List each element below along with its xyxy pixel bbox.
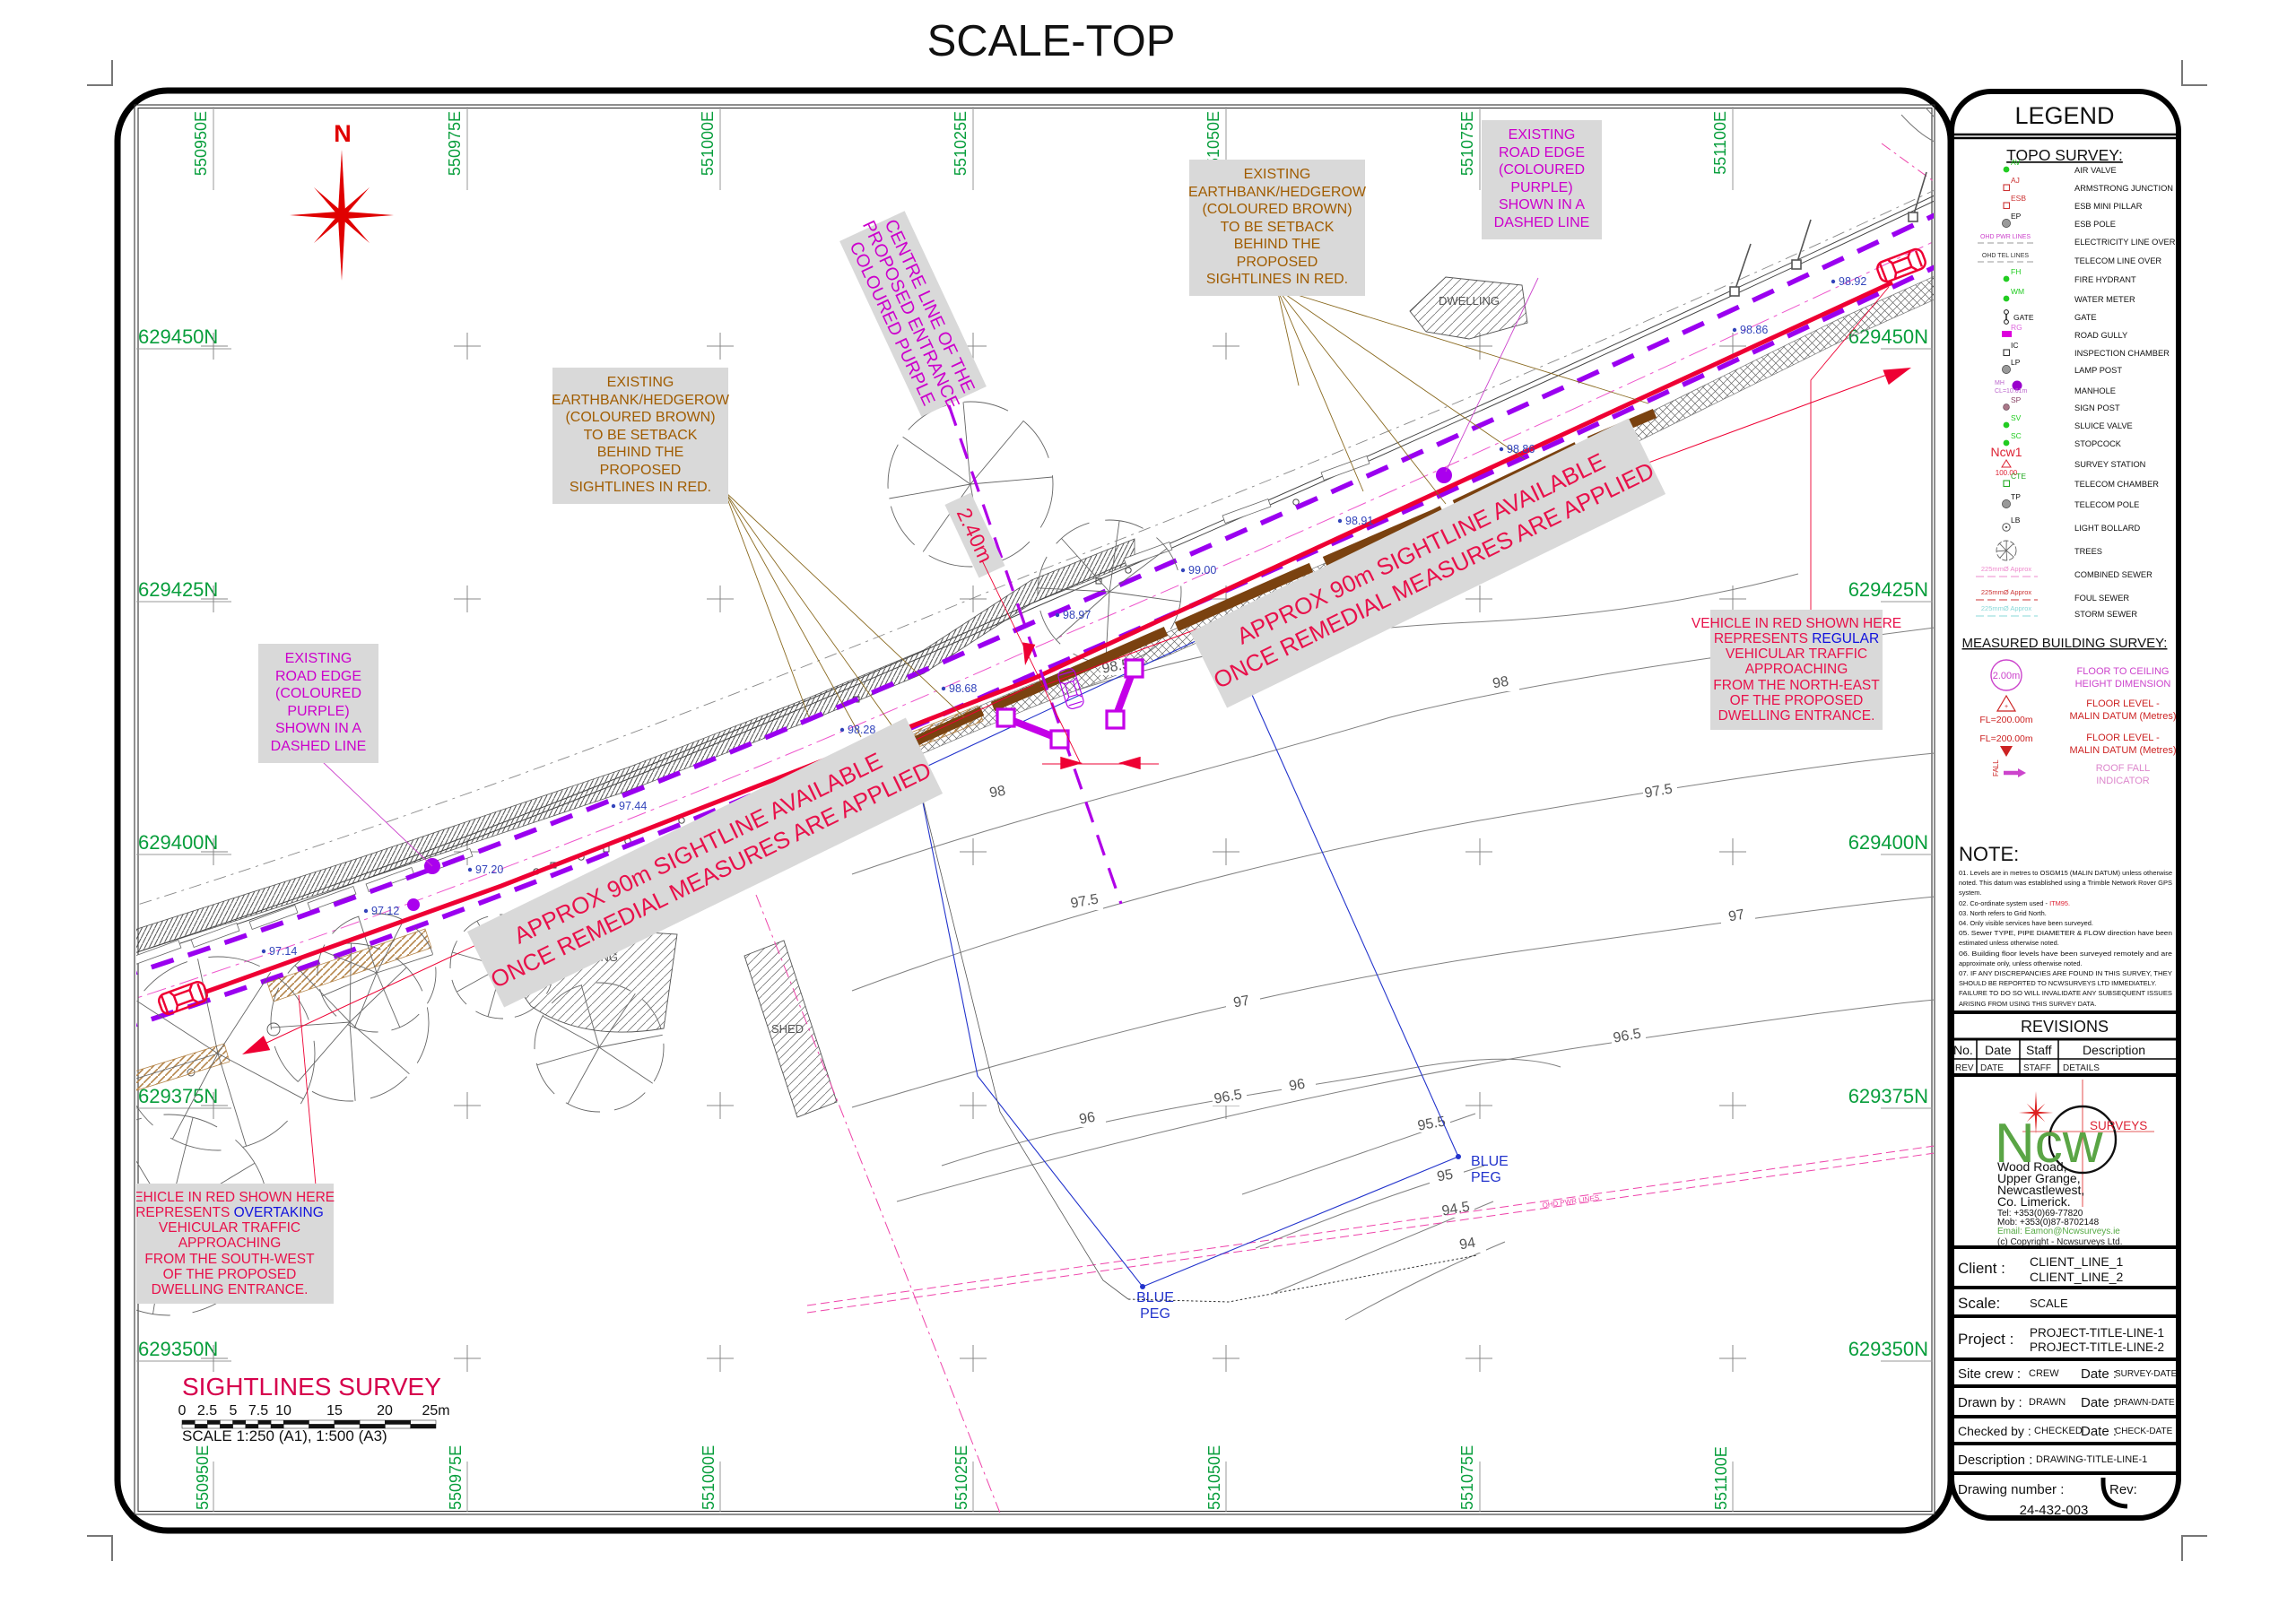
svg-text:LIGHT BOLLARD: LIGHT BOLLARD (2074, 524, 2140, 533)
svg-text:SIGHTLINES SURVEY: SIGHTLINES SURVEY (182, 1373, 441, 1401)
svg-text:PROJECT-TITLE-LINE-2: PROJECT-TITLE-LINE-2 (2030, 1340, 2164, 1354)
svg-text:FLOOR LEVEL -: FLOOR LEVEL - (2086, 698, 2160, 709)
svg-text:01. Levels are in metres to O: 01. Levels are in metres to OSGM15 (MALI… (1959, 869, 2172, 877)
svg-text:system.: system. (1959, 889, 1981, 897)
svg-text:SIGHTLINES IN RED.: SIGHTLINES IN RED. (1206, 272, 1348, 287)
svg-text:SCALE: SCALE (2030, 1297, 2068, 1310)
svg-text:551025E: 551025E (952, 1445, 970, 1510)
svg-text:GATE: GATE (2013, 313, 2034, 322)
svg-text:DWELLING: DWELLING (1439, 294, 1500, 308)
svg-text:97.20: 97.20 (475, 863, 503, 876)
svg-text:Site crew :: Site crew : (1958, 1366, 2021, 1382)
svg-text:PROJECT-TITLE-LINE-1: PROJECT-TITLE-LINE-1 (2030, 1326, 2164, 1340)
svg-text:WM: WM (2011, 287, 2024, 296)
svg-text:550950E: 550950E (194, 1445, 212, 1510)
svg-text:98: 98 (1492, 674, 1510, 692)
svg-text:Scale:: Scale: (1958, 1295, 2000, 1312)
svg-text:REV: REV (1955, 1063, 1974, 1073)
svg-text:2.00m: 2.00m (1993, 671, 2021, 681)
svg-text:FALL: FALL (1992, 759, 2000, 776)
svg-text:15: 15 (326, 1403, 343, 1418)
svg-text:Drawing number :: Drawing number : (1958, 1482, 2064, 1497)
svg-text:(COLOURED: (COLOURED (1499, 162, 1585, 178)
svg-text:ARISING FROM USING THIS SURVEY: ARISING FROM USING THIS SURVEY DATA. (1959, 1000, 2096, 1008)
svg-text:ELECTRICITY LINE OVER: ELECTRICITY LINE OVER (2074, 238, 2176, 247)
svg-text:VEHICLE IN RED SHOWN HERE: VEHICLE IN RED SHOWN HERE (1692, 616, 1901, 631)
svg-text:225mmØ Approx: 225mmØ Approx (1981, 604, 2032, 612)
svg-text:551100E: 551100E (1712, 1446, 1730, 1510)
svg-text:VEHICLE IN RED SHOWN HERE: VEHICLE IN RED SHOWN HERE (125, 1190, 335, 1205)
svg-text:225mmØ Approx: 225mmØ Approx (1981, 565, 2032, 573)
svg-text:TELECOM POLE: TELECOM POLE (2074, 500, 2139, 509)
svg-text:TREES: TREES (2074, 547, 2102, 556)
svg-text:629450N: 629450N (138, 325, 218, 348)
svg-text:APPROACHING: APPROACHING (178, 1236, 282, 1251)
svg-text:PURPLE): PURPLE) (287, 704, 349, 719)
svg-text:N: N (334, 120, 352, 147)
svg-text:CHECKED: CHECKED (2034, 1426, 2083, 1436)
svg-text:98.91: 98.91 (1345, 515, 1373, 527)
svg-text:CL=10.61m: CL=10.61m (1995, 388, 2028, 395)
svg-text:FAILURE TO DO SO WILL INVALIDA: FAILURE TO DO SO WILL INVALIDATE ANY SUB… (1959, 989, 2172, 997)
svg-text:BEHIND THE: BEHIND THE (597, 445, 684, 460)
svg-text:DRAWING-TITLE-LINE-1: DRAWING-TITLE-LINE-1 (2036, 1454, 2147, 1465)
svg-text:551075E: 551075E (1458, 1445, 1476, 1510)
svg-text:7.5: 7.5 (248, 1403, 268, 1418)
svg-text:95: 95 (1436, 1167, 1455, 1185)
svg-text:629425N: 629425N (138, 578, 218, 601)
svg-text:SURVEY-DATE: SURVEY-DATE (2115, 1369, 2178, 1379)
svg-text:629350N: 629350N (138, 1338, 218, 1360)
svg-text:MEASURED BUILDING SURVEY:: MEASURED BUILDING SURVEY: (1962, 636, 2168, 651)
svg-text:PROPOSED: PROPOSED (1237, 255, 1318, 270)
svg-text:SLUICE VALVE: SLUICE VALVE (2074, 421, 2133, 430)
svg-text:96: 96 (1078, 1110, 1097, 1128)
svg-text:VEHICULAR TRAFFIC: VEHICULAR TRAFFIC (1726, 646, 1867, 662)
svg-text:24-432-003: 24-432-003 (2020, 1503, 2089, 1518)
svg-text:MALIN DATUM (Metres): MALIN DATUM (Metres) (2070, 745, 2177, 756)
svg-text:SHED: SHED (771, 1022, 804, 1036)
svg-text:STORM SEWER: STORM SEWER (2074, 610, 2137, 619)
svg-text:STAFF: STAFF (2023, 1063, 2051, 1073)
svg-text:MALIN DATUM (Metres): MALIN DATUM (Metres) (2070, 711, 2177, 722)
svg-text:GATE: GATE (2074, 313, 2097, 322)
svg-text:EXISTING: EXISTING (1509, 127, 1576, 143)
svg-text:629375N: 629375N (138, 1085, 218, 1107)
svg-text:noted. This datum was establis: noted. This datum was established using … (1959, 879, 2172, 887)
svg-text:98.86: 98.86 (1507, 443, 1535, 455)
svg-text:ROAD GULLY: ROAD GULLY (2074, 331, 2127, 340)
svg-text:HEIGHT DIMENSION: HEIGHT DIMENSION (2075, 679, 2171, 690)
svg-text:551025E: 551025E (952, 111, 970, 176)
svg-text:ROOF FALL: ROOF FALL (2096, 763, 2151, 774)
svg-text:LP: LP (2011, 358, 2021, 367)
svg-text:REPRESENTS OVERTAKING: REPRESENTS OVERTAKING (135, 1205, 324, 1220)
svg-text:SIGHTLINES IN RED.: SIGHTLINES IN RED. (570, 480, 711, 495)
svg-text:98.68: 98.68 (949, 682, 977, 695)
svg-text:FOUL SEWER: FOUL SEWER (2074, 594, 2129, 603)
svg-text:DRAWN: DRAWN (2029, 1397, 2066, 1408)
svg-text:BEHIND THE: BEHIND THE (1234, 237, 1321, 252)
svg-text:05. Sewer TYPE, PIPE DIAMETER: 05. Sewer TYPE, PIPE DIAMETER & FLOW dir… (1959, 929, 2172, 937)
svg-text:Date :: Date : (2081, 1366, 2117, 1382)
svg-text:SIGN POST: SIGN POST (2074, 403, 2120, 412)
svg-text:Description: Description (2083, 1043, 2145, 1057)
svg-text:629400N: 629400N (138, 831, 218, 854)
svg-text:629400N: 629400N (1848, 831, 1928, 854)
svg-text:ROAD EDGE: ROAD EDGE (1499, 145, 1585, 160)
svg-text:97.14: 97.14 (269, 945, 297, 958)
svg-text:98.28: 98.28 (848, 724, 875, 736)
svg-text:Email: Eamon@Ncwsurveys.ie: Email: Eamon@Ncwsurveys.ie (1997, 1227, 2120, 1236)
svg-text:Rev:: Rev: (2109, 1482, 2137, 1497)
svg-text:INSPECTION CHAMBER: INSPECTION CHAMBER (2074, 349, 2170, 358)
svg-text:FROM THE SOUTH-WEST: FROM THE SOUTH-WEST (144, 1252, 315, 1267)
svg-text:06. Building floor levels hav: 06. Building floor levels have been surv… (1959, 950, 2172, 958)
svg-text:SHOULD BE REPORTED TO NCWSURVE: SHOULD BE REPORTED TO NCWSURVEYS LTD IMM… (1959, 979, 2156, 987)
svg-text:Client :: Client : (1958, 1260, 2005, 1277)
svg-text:07. IF ANY DISCREPANCIES ARE: 07. IF ANY DISCREPANCIES ARE FOUND IN TH… (1959, 969, 2172, 977)
svg-text:551000E: 551000E (699, 111, 717, 176)
svg-text:NOTE:: NOTE: (1959, 843, 2019, 865)
svg-text:ESB: ESB (2011, 194, 2026, 203)
svg-text:DWELLING ENTRANCE.: DWELLING ENTRANCE. (152, 1282, 309, 1297)
svg-text:DRAWN-DATE: DRAWN-DATE (2115, 1398, 2175, 1408)
svg-text:estimated unless otherwise not: estimated unless otherwise noted. (1959, 939, 2059, 947)
svg-text:TOPO SURVEY:: TOPO SURVEY: (2006, 146, 2123, 164)
svg-text:Drawn by :: Drawn by : (1958, 1395, 2022, 1410)
svg-text:98.86: 98.86 (1740, 324, 1768, 336)
svg-text:ESB MINI PILLAR: ESB MINI PILLAR (2074, 202, 2143, 211)
svg-text:(COLOURED: (COLOURED (275, 686, 361, 701)
svg-text:CLIENT_LINE_1: CLIENT_LINE_1 (2030, 1254, 2123, 1269)
svg-text:EXISTING: EXISTING (1244, 167, 1311, 182)
svg-text:SP: SP (2011, 395, 2022, 404)
svg-text:Date: Date (1985, 1043, 2012, 1057)
svg-text:(COLOURED BROWN): (COLOURED BROWN) (1202, 202, 1352, 217)
svg-text:SHOWN IN A: SHOWN IN A (1499, 197, 1585, 213)
svg-text:SV: SV (2011, 413, 2022, 422)
svg-text:Staff: Staff (2026, 1043, 2052, 1057)
svg-text:DASHED LINE: DASHED LINE (1494, 215, 1590, 230)
svg-text:5: 5 (230, 1403, 238, 1418)
svg-text:STOPCOCK: STOPCOCK (2074, 439, 2122, 448)
svg-text:EARTHBANK/HEDGEROW: EARTHBANK/HEDGEROW (1188, 185, 1367, 200)
svg-text:EARTHBANK/HEDGEROW: EARTHBANK/HEDGEROW (552, 393, 730, 408)
svg-text:FL=200.00m: FL=200.00m (1979, 733, 2033, 744)
svg-text:PEG: PEG (1471, 1170, 1501, 1185)
svg-text:SURVEY STATION: SURVEY STATION (2074, 460, 2145, 469)
svg-text:(COLOURED BROWN): (COLOURED BROWN) (565, 410, 715, 425)
svg-text:DWELLING ENTRANCE.: DWELLING ENTRANCE. (1718, 708, 1875, 724)
svg-text:SURVEYS: SURVEYS (2090, 1119, 2147, 1132)
svg-text:225mmØ Approx: 225mmØ Approx (1981, 588, 2032, 596)
svg-text:551000E: 551000E (700, 1445, 717, 1510)
svg-text:CREW: CREW (2029, 1368, 2059, 1379)
svg-text:MANHOLE: MANHOLE (2074, 386, 2116, 395)
svg-text:DATE: DATE (1980, 1063, 2004, 1073)
svg-text:AIR VALVE: AIR VALVE (2074, 166, 2117, 175)
svg-text:DETAILS: DETAILS (2063, 1063, 2100, 1073)
svg-text:02. Co-ordinate system used -: 02. Co-ordinate system used - ITM95. (1959, 899, 2070, 907)
svg-text:VEHICULAR TRAFFIC: VEHICULAR TRAFFIC (159, 1220, 300, 1236)
svg-text:OF THE PROPOSED: OF THE PROPOSED (163, 1267, 297, 1282)
svg-text:EP: EP (2011, 212, 2022, 221)
svg-text:LB: LB (2011, 516, 2021, 525)
svg-text:629425N: 629425N (1848, 578, 1928, 601)
svg-text:97.44: 97.44 (619, 800, 647, 812)
svg-text:97: 97 (1727, 907, 1746, 925)
svg-text:Checked by :: Checked by : (1958, 1424, 2031, 1438)
svg-text:551050E: 551050E (1205, 1445, 1223, 1510)
svg-text:99.00: 99.00 (1188, 564, 1216, 577)
svg-text:0: 0 (178, 1403, 187, 1418)
svg-text:551075E: 551075E (1458, 111, 1476, 176)
svg-text:EXISTING: EXISTING (285, 651, 352, 666)
svg-text:FL=200.00m: FL=200.00m (1979, 715, 2033, 725)
svg-text:TO BE SETBACK: TO BE SETBACK (1221, 220, 1335, 235)
svg-text:OHD TEL LINES: OHD TEL LINES (1982, 253, 2029, 259)
svg-text:551100E: 551100E (1711, 111, 1729, 175)
svg-text:MH: MH (1995, 380, 2005, 386)
svg-text:COMBINED SEWER: COMBINED SEWER (2074, 570, 2152, 579)
svg-text:Ncw1: Ncw1 (1990, 445, 2022, 459)
svg-text:FIRE HYDRANT: FIRE HYDRANT (2074, 275, 2136, 284)
svg-text:RG: RG (2011, 323, 2022, 332)
svg-text:FLOOR LEVEL -: FLOOR LEVEL - (2086, 733, 2160, 743)
svg-text:REPRESENTS REGULAR: REPRESENTS REGULAR (1714, 631, 1879, 646)
svg-text:+: + (2005, 704, 2008, 710)
svg-text:REVISIONS: REVISIONS (2021, 1018, 2109, 1036)
svg-text:WATER METER: WATER METER (2074, 295, 2135, 304)
svg-text:TO BE SETBACK: TO BE SETBACK (584, 428, 698, 443)
svg-text:TELECOM CHAMBER: TELECOM CHAMBER (2074, 480, 2159, 489)
svg-text:20: 20 (377, 1403, 393, 1418)
svg-text:FLOOR TO CEILING: FLOOR TO CEILING (2077, 666, 2170, 677)
svg-text:ARMSTRONG JUNCTION: ARMSTRONG JUNCTION (2074, 184, 2173, 193)
svg-text:BLUE: BLUE (1136, 1290, 1174, 1305)
svg-text:550950E: 550950E (192, 111, 210, 176)
svg-text:IC: IC (2011, 341, 2019, 350)
svg-text:SCALE-TOP: SCALE-TOP (927, 17, 1176, 65)
svg-text:96: 96 (1288, 1077, 1307, 1095)
svg-text:CHECK-DATE: CHECK-DATE (2115, 1427, 2173, 1436)
svg-text:2.5: 2.5 (197, 1403, 217, 1418)
svg-text:550975E: 550975E (447, 1445, 465, 1510)
svg-text:EXISTING: EXISTING (607, 375, 674, 390)
svg-text:629350N: 629350N (1848, 1338, 1928, 1360)
svg-text:94: 94 (1458, 1236, 1477, 1253)
svg-text:No.: No. (1953, 1043, 1973, 1057)
svg-text:approximate only, unless other: approximate only, unless otherwise noted… (1959, 959, 2083, 967)
svg-text:PROPOSED: PROPOSED (600, 463, 682, 478)
svg-text:97: 97 (1232, 993, 1251, 1011)
svg-text:25m: 25m (422, 1403, 449, 1418)
svg-text:TP: TP (2011, 492, 2021, 501)
svg-text:INDICATOR: INDICATOR (2096, 776, 2150, 786)
svg-text:OF THE PROPOSED: OF THE PROPOSED (1730, 693, 1864, 708)
svg-text:SHOWN IN A: SHOWN IN A (275, 721, 361, 736)
svg-text:AV: AV (2011, 158, 2021, 167)
svg-text:Description :: Description : (1958, 1453, 2032, 1468)
svg-text:ESB POLE: ESB POLE (2074, 220, 2116, 229)
svg-text:APPROACHING: APPROACHING (1745, 662, 1848, 677)
svg-text:03. North refers to Grid Nort: 03. North refers to Grid North. (1959, 909, 2047, 917)
svg-text:CLIENT_LINE_2: CLIENT_LINE_2 (2030, 1270, 2123, 1284)
svg-text:LEGEND: LEGEND (2014, 102, 2114, 129)
svg-text:FROM THE NORTH-EAST: FROM THE NORTH-EAST (1713, 678, 1880, 693)
svg-text:98.92: 98.92 (1839, 275, 1866, 288)
svg-text:FH: FH (2011, 267, 2021, 276)
svg-text:Project :: Project : (1958, 1331, 2013, 1348)
svg-text:550975E: 550975E (446, 111, 464, 176)
svg-text:OHD PWR LINES: OHD PWR LINES (1980, 234, 2031, 240)
svg-text:ROAD EDGE: ROAD EDGE (275, 669, 361, 684)
svg-text:SCALE 1:250 (A1), 1:500 (A3): SCALE 1:250 (A1), 1:500 (A3) (182, 1427, 387, 1444)
svg-text:PEG: PEG (1140, 1306, 1170, 1322)
svg-text:04. Only visible services hav: 04. Only visible services have been surv… (1959, 919, 2093, 927)
svg-text:DASHED LINE: DASHED LINE (271, 739, 367, 754)
svg-text:10: 10 (275, 1403, 291, 1418)
svg-text:SC: SC (2011, 431, 2022, 440)
svg-text:Date :: Date : (2081, 1395, 2117, 1410)
svg-text:CTE: CTE (2011, 472, 2026, 481)
svg-text:98: 98 (988, 784, 1007, 802)
svg-text:AJ: AJ (2011, 176, 2020, 185)
svg-text:TELECOM LINE OVER: TELECOM LINE OVER (2074, 256, 2161, 265)
svg-text:Date :: Date : (2081, 1424, 2117, 1439)
svg-text:Co. Limerick.: Co. Limerick. (1997, 1194, 2071, 1209)
svg-text:97.12: 97.12 (371, 905, 399, 917)
svg-text:98.97: 98.97 (1063, 609, 1091, 621)
svg-text:BLUE: BLUE (1471, 1154, 1509, 1169)
svg-text:629375N: 629375N (1848, 1085, 1928, 1107)
svg-text:PURPLE): PURPLE) (1510, 180, 1572, 195)
svg-text:LAMP POST: LAMP POST (2074, 366, 2122, 375)
